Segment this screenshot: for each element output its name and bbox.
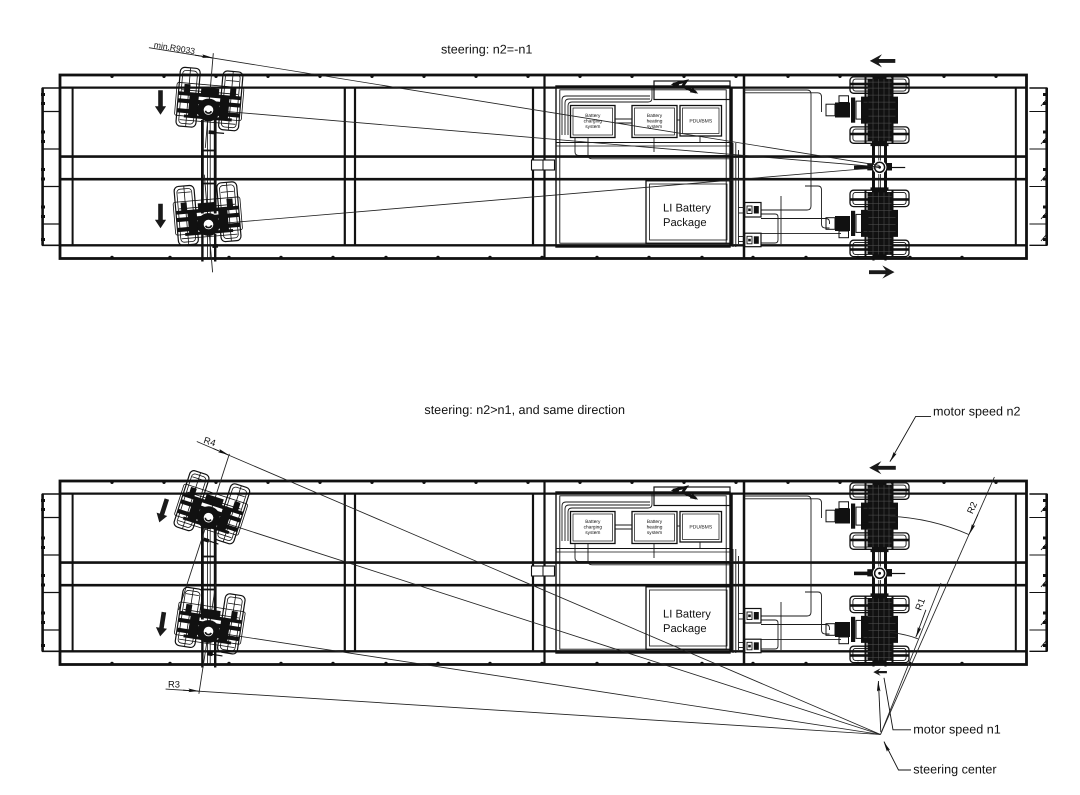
- svg-text:motor speed n2: motor speed n2: [933, 404, 1021, 418]
- svg-text:min.R9033: min.R9033: [153, 40, 196, 57]
- svg-text:R3: R3: [168, 678, 180, 689]
- svg-text:R1: R1: [913, 597, 927, 612]
- svg-text:R2: R2: [964, 500, 979, 515]
- svg-text:steering: n2>n1, and same dir: steering: n2>n1, and same direction: [424, 403, 625, 417]
- svg-text:steering center: steering center: [913, 763, 996, 777]
- svg-text:motor speed n1: motor speed n1: [913, 723, 1001, 737]
- svg-text:steering: n2=-n1: steering: n2=-n1: [441, 42, 532, 56]
- svg-text:R4: R4: [202, 434, 217, 448]
